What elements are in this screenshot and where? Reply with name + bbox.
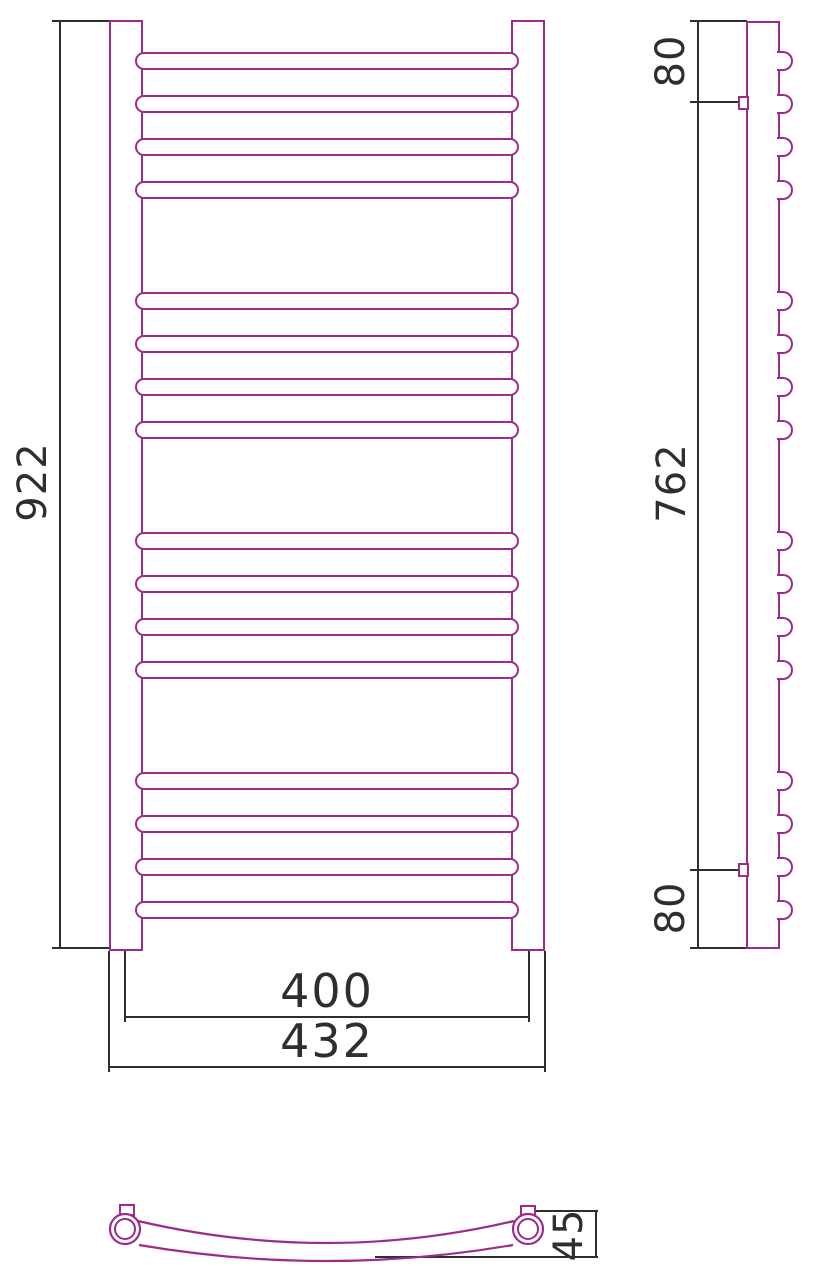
rung — [135, 901, 519, 919]
rung — [135, 575, 519, 593]
rung-end-bump — [777, 814, 793, 834]
rung — [135, 181, 519, 199]
side-tick-bottom-bracket — [690, 869, 739, 871]
rung — [135, 335, 519, 353]
rung-end-bump — [777, 291, 793, 311]
plan-right-post-section-inner — [518, 1219, 538, 1239]
front-400-extension-right — [528, 951, 530, 1022]
front-400-label: 400 — [227, 968, 427, 1014]
rung-end-bump — [777, 617, 793, 637]
side-extension-bottom — [690, 947, 748, 949]
side-80-bottom-label: 80 — [649, 848, 693, 968]
rung-end-bump — [777, 660, 793, 680]
side-762-label: 762 — [650, 423, 694, 543]
rung — [135, 661, 519, 679]
rung-end-bump — [777, 531, 793, 551]
side-wall-bracket-bottom — [738, 863, 749, 877]
side-tick-top-bracket — [690, 101, 739, 103]
rung — [135, 618, 519, 636]
front-right-post — [511, 20, 545, 951]
rung-end-bump — [777, 137, 793, 157]
rung — [135, 378, 519, 396]
rung — [135, 815, 519, 833]
rung-end-bump — [777, 420, 793, 440]
front-432-label: 432 — [227, 1018, 427, 1064]
rung-end-bump — [777, 900, 793, 920]
front-432-extension-right — [544, 951, 546, 1072]
front-432-extension-left — [108, 951, 110, 1072]
rung — [135, 52, 519, 70]
rung-end-bump — [777, 857, 793, 877]
rung-end-bump — [777, 771, 793, 791]
rung — [135, 95, 519, 113]
rung-end-bump — [777, 51, 793, 71]
front-height-label: 922 — [11, 422, 55, 542]
side-post-profile — [746, 21, 780, 949]
front-left-post — [109, 20, 143, 951]
plan-bowed-rung-front-edge — [138, 1221, 514, 1243]
rung-end-bump — [777, 574, 793, 594]
rung-end-bump — [777, 180, 793, 200]
rung — [135, 858, 519, 876]
rung — [135, 772, 519, 790]
rung-end-bump — [777, 334, 793, 354]
rung-end-bump — [777, 94, 793, 114]
side-dimension-line — [697, 21, 699, 949]
rung — [135, 421, 519, 439]
front-400-extension-left — [124, 951, 126, 1022]
side-wall-bracket-top — [738, 96, 749, 110]
front-height-dimension-line — [59, 21, 61, 949]
plan-left-post-section-inner — [115, 1219, 135, 1239]
front-height-extension-top — [52, 20, 110, 22]
rung — [135, 138, 519, 156]
technical-drawing-canvas: 922 400 432 80 762 80 — [0, 0, 813, 1280]
front-height-extension-bottom — [52, 947, 110, 949]
plan-curved-rail-drawing — [90, 1195, 610, 1275]
plan-bowed-rung-back-edge — [139, 1245, 513, 1261]
rung — [135, 532, 519, 550]
rung-end-bump — [777, 377, 793, 397]
side-80-top-label: 80 — [649, 1, 693, 121]
side-extension-top — [690, 20, 747, 22]
rung — [135, 292, 519, 310]
